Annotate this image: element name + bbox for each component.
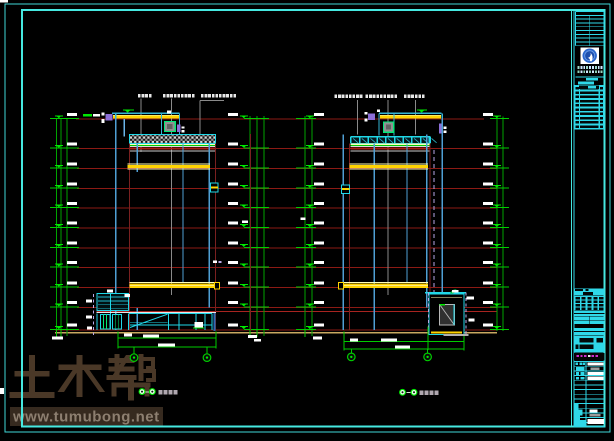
svg-text:www.tumubong.net: www.tumubong.net (12, 409, 160, 426)
